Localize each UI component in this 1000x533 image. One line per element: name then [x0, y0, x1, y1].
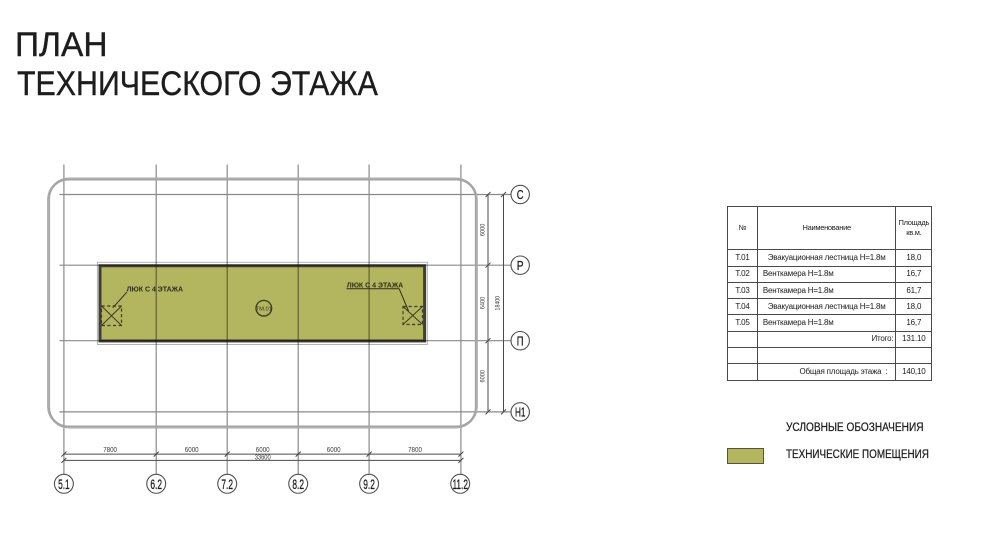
svg-text:33600: 33600: [255, 452, 271, 461]
svg-text:П: П: [517, 333, 524, 348]
svg-text:ТМ.01: ТМ.01: [256, 306, 272, 312]
svg-text:6000: 6000: [327, 445, 341, 454]
svg-text:6000: 6000: [479, 370, 486, 383]
svg-text:9.2: 9.2: [363, 476, 375, 492]
svg-text:Р: Р: [517, 258, 524, 273]
svg-text:6000: 6000: [185, 445, 199, 454]
svg-text:ЛЮК С 4 ЭТАЖА: ЛЮК С 4 ЭТАЖА: [127, 287, 183, 294]
svg-text:7800: 7800: [103, 445, 117, 454]
svg-text:Н1: Н1: [515, 405, 526, 420]
svg-text:11.2: 11.2: [452, 476, 468, 492]
svg-text:5.1: 5.1: [58, 476, 70, 492]
svg-text:6000: 6000: [479, 223, 486, 236]
svg-text:7800: 7800: [408, 445, 422, 454]
svg-text:7.2: 7.2: [221, 476, 233, 492]
svg-text:6400: 6400: [479, 296, 486, 309]
svg-text:18400: 18400: [495, 295, 502, 310]
svg-text:6.2: 6.2: [150, 476, 162, 492]
svg-text:8.2: 8.2: [292, 476, 304, 492]
svg-text:С: С: [517, 187, 524, 202]
